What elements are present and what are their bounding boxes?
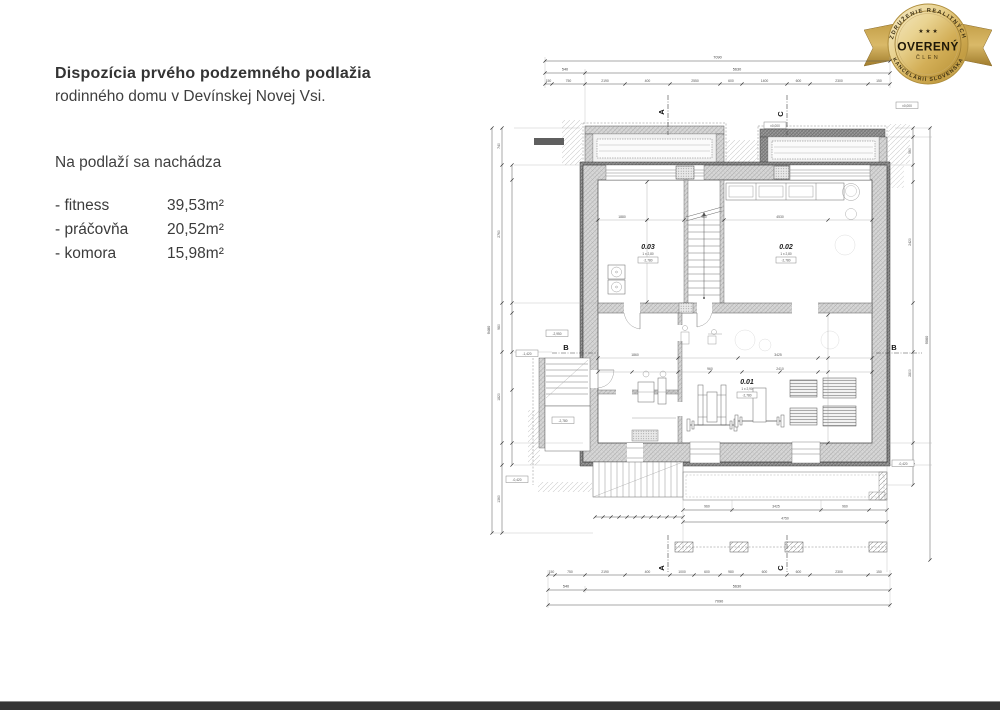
section-b-marker: B <box>891 343 897 352</box>
dim-label: 960 <box>842 505 848 509</box>
dim-label: 9060 <box>925 336 929 344</box>
badge-stars: ★ ★ ★ <box>918 28 937 35</box>
dimension-lines-top: 7090 540 5630 150 750 2190 400 2550 600 … <box>543 56 891 125</box>
dim-label: 600 <box>728 79 734 83</box>
section-b-marker: B <box>563 343 569 352</box>
svg-text:0.03: 0.03 <box>641 244 655 251</box>
dim-label: 2420 <box>908 238 912 246</box>
list-item: - komora 15,98m² <box>55 242 465 266</box>
dim-label: 5630 <box>733 585 741 589</box>
dim-label: 2800 <box>908 369 912 377</box>
list-item: - práčovňa 20,52m² <box>55 218 465 242</box>
dim-label: 150 <box>546 79 552 83</box>
description-panel: Dispozícia prvého podzemného podlažia ro… <box>55 64 465 266</box>
room-name: - práčovňa <box>55 218 167 242</box>
dim-label: 3425 <box>772 505 780 509</box>
room-area: 20,52m² <box>167 218 224 242</box>
section-a-marker: A <box>657 565 666 571</box>
dim-label: 540 <box>562 68 568 72</box>
dim-label: 7090 <box>715 600 723 604</box>
page-subtitle: rodinného domu v Devínskej Novej Vsi. <box>55 88 465 106</box>
dim-label: 7090 <box>713 56 721 60</box>
dim-label: 980 <box>497 324 501 330</box>
elevation-label: -1,420 <box>522 352 531 356</box>
dim-label: 600 <box>796 79 802 83</box>
dim-label: 600 <box>704 570 710 574</box>
dim-label: 600 <box>796 570 802 574</box>
dim-label: 1400 <box>761 79 769 83</box>
dim-label: 560 <box>908 148 912 154</box>
dim-label: 1880 <box>618 215 626 219</box>
dim-label: 1860 <box>631 353 639 357</box>
dim-label: 2760 <box>497 230 501 238</box>
dim-label: 150 <box>549 570 555 574</box>
dim-label: 2300 <box>835 570 843 574</box>
dim-label: 2190 <box>601 570 609 574</box>
section-c-marker: C <box>776 111 785 117</box>
dim-label: 750 <box>566 79 572 83</box>
room-list: - fitness 39,53m² - práčovňa 20,52m² - k… <box>55 194 465 266</box>
elevation-label: ±0,000 <box>770 124 780 128</box>
dim-label: 4750 <box>781 517 789 521</box>
dim-label: 1820 <box>497 393 501 401</box>
room-name: - komora <box>55 242 167 266</box>
dim-label: 960 <box>704 505 710 509</box>
elevation-label: -0,420 <box>898 462 907 466</box>
svg-text:-2,780: -2,780 <box>742 394 751 398</box>
section-c-marker: C <box>776 565 785 571</box>
dim-label: 1000 <box>678 570 686 574</box>
dim-label: 750 <box>567 570 573 574</box>
dim-label: 600 <box>762 570 768 574</box>
page-title: Dispozícia prvého podzemného podlažia <box>55 64 465 85</box>
elevation-label: -2,950 <box>552 332 561 336</box>
room-name: - fitness <box>55 194 167 218</box>
floor-plan: 960 3425 960 4750 A C A C B B 7090 540 5… <box>480 40 1000 650</box>
dim-label: 9480 <box>487 326 491 334</box>
svg-text:1 x 2,80: 1 x 2,80 <box>780 252 792 256</box>
dim-label: 540 <box>563 585 569 589</box>
dim-label: 2300 <box>835 79 843 83</box>
dim-label: 1360 <box>497 495 501 503</box>
dim-label: 400 <box>645 79 651 83</box>
dim-label: 150 <box>876 570 882 574</box>
dim-label: 3425 <box>774 353 782 357</box>
svg-text:-2,780: -2,780 <box>781 259 790 263</box>
section-a-marker: A <box>657 109 666 115</box>
dim-label: 4530 <box>776 215 784 219</box>
room-area: 39,53m² <box>167 194 224 218</box>
dim-label: 2190 <box>601 79 609 83</box>
svg-text:0.02: 0.02 <box>779 244 793 251</box>
svg-text:1 x 2,80: 1 x 2,80 <box>642 252 654 256</box>
legend-box <box>534 138 564 145</box>
svg-text:1 x 2,90: 1 x 2,90 <box>741 387 753 391</box>
dim-label: 400 <box>645 570 651 574</box>
dim-label: 150 <box>876 79 882 83</box>
room-area: 15,98m² <box>167 242 224 266</box>
svg-text:0.01: 0.01 <box>740 379 754 386</box>
dim-label: 740 <box>497 143 501 149</box>
dim-label: 980 <box>728 570 734 574</box>
svg-text:-2,780: -2,780 <box>643 259 652 263</box>
rooms-heading: Na podlaží sa nachádza <box>55 154 465 172</box>
dim-label: 980 <box>701 215 707 219</box>
list-item: - fitness 39,53m² <box>55 194 465 218</box>
bottom-bar <box>0 701 1000 710</box>
dim-label: 2410 <box>776 367 784 371</box>
elevation-label: -2,780 <box>558 419 567 423</box>
dim-label: 5630 <box>733 68 741 72</box>
dim-label: 2550 <box>691 79 699 83</box>
elevation-label: -0,420 <box>512 478 521 482</box>
elevation-label: ±0,000 <box>902 104 912 108</box>
dim-label: 960 <box>707 367 713 371</box>
